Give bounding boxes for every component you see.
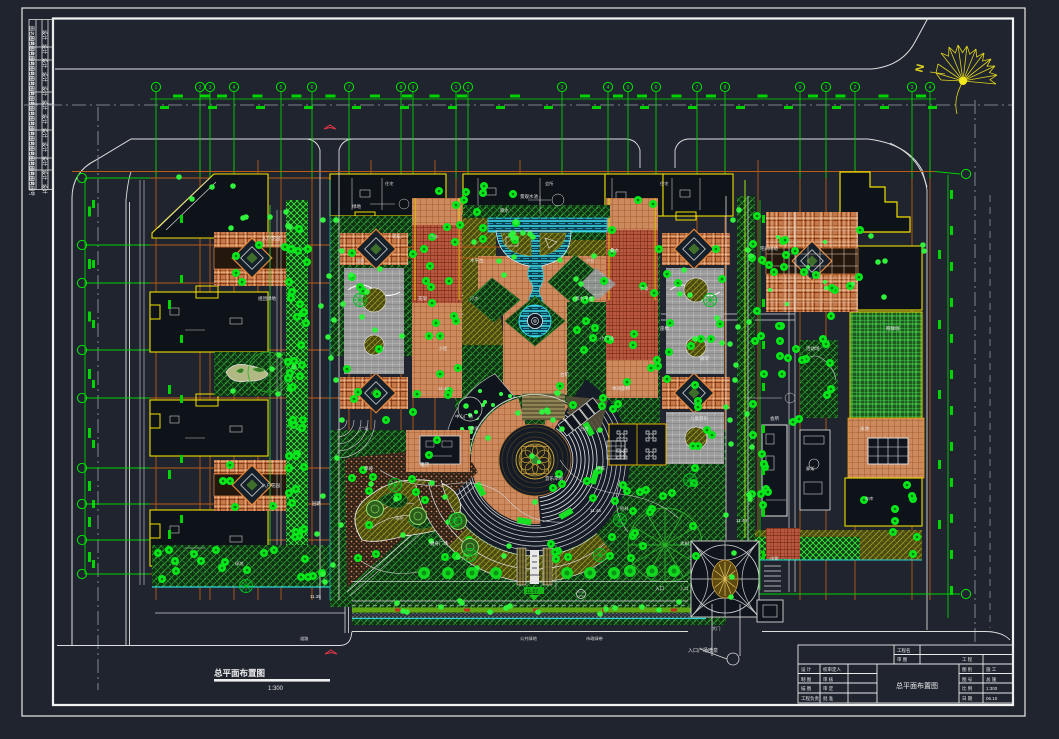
svg-text:廊架: 廊架 [700,355,709,362]
svg-text:步道: 步道 [640,285,649,292]
svg-text:总平面布置图: 总平面布置图 [896,681,938,690]
svg-text:大树: 大树 [680,540,689,547]
svg-text:雕塑: 雕塑 [420,461,429,468]
svg-text:5: 5 [280,85,283,91]
svg-text:工程负责: 工程负责 [801,695,819,702]
svg-text:批 准: 批 准 [823,695,834,702]
svg-text:设计: 设计 [41,86,48,96]
svg-text:泳池: 泳池 [860,425,869,432]
svg-text:叠水: 叠水 [610,247,619,254]
svg-text:设计: 设计 [41,72,48,82]
svg-text:3: 3 [911,85,914,91]
svg-text:1:300: 1:300 [268,686,284,692]
svg-text:4: 4 [929,85,932,91]
svg-text:1: 1 [455,85,458,91]
svg-text:密林: 密林 [620,505,629,512]
svg-text:中心广场: 中心广场 [455,413,473,420]
svg-text:2: 2 [199,85,202,91]
svg-text:景观水池: 景观水池 [520,193,538,200]
svg-text:汀步: 汀步 [470,295,478,302]
svg-text:11.40: 11.40 [736,518,747,523]
svg-text:休闲座椅: 休闲座椅 [612,385,630,392]
svg-text:1: 1 [825,85,828,91]
svg-text:公共绿地: 公共绿地 [520,635,538,642]
svg-text:会所: 会所 [545,180,553,187]
svg-text:4: 4 [233,85,236,91]
svg-text:设计: 设计 [41,30,48,40]
svg-text:台阶: 台阶 [560,371,569,378]
svg-text:儿童游乐: 儿童游乐 [690,415,708,422]
svg-text:健身广场: 健身广场 [430,540,448,547]
svg-text:宅间绿地: 宅间绿地 [760,245,778,252]
svg-text:小径: 小径 [438,345,447,352]
svg-text:亲水平台: 亲水平台 [575,295,593,302]
svg-text:4: 4 [607,85,610,91]
svg-text:9: 9 [412,85,415,91]
svg-text:设 计: 设 计 [801,666,812,673]
svg-text:2: 2 [467,85,470,91]
svg-text:车库: 车库 [865,495,873,502]
svg-text:5: 5 [627,85,630,91]
svg-text:草坪: 草坪 [395,515,403,522]
svg-text:入户花园: 入户花园 [262,482,280,489]
svg-text:台地: 台地 [580,425,589,432]
svg-text:网球场: 网球场 [886,325,900,332]
svg-text:8: 8 [400,85,403,91]
svg-text:工程名: 工程名 [897,647,911,654]
svg-text:设计: 设计 [41,170,48,180]
svg-text:9: 9 [799,85,802,91]
svg-text:11.45: 11.45 [438,386,449,391]
svg-text:草坡: 草坡 [364,465,373,472]
svg-text:2: 2 [854,85,857,91]
svg-text:大门: 大门 [712,625,720,632]
svg-text:跌水: 跌水 [500,207,509,214]
svg-text:座椅: 座椅 [660,325,669,332]
svg-text:图名图号: 图名图号 [28,176,35,196]
svg-text:住宅: 住宅 [385,180,393,186]
svg-text:绿地: 绿地 [235,560,244,566]
svg-text:工 程: 工 程 [962,656,973,663]
svg-text:花境: 花境 [470,425,478,432]
svg-text:审 核: 审 核 [823,676,834,683]
svg-text:比 例: 比 例 [962,685,973,692]
svg-text:总平面布置图: 总平面布置图 [214,668,265,678]
svg-text:施 工: 施 工 [986,666,997,673]
svg-text:7: 7 [348,85,351,91]
svg-text:入户花园: 入户花园 [262,235,280,242]
svg-text:亲水: 亲水 [430,233,439,239]
svg-text:1: 1 [155,85,158,91]
svg-text:住宅: 住宅 [660,180,668,186]
svg-text:06.10: 06.10 [986,696,998,701]
svg-text:绿篱: 绿篱 [770,555,778,562]
svg-text:审 定: 审 定 [823,685,834,692]
svg-text:小广场: 小广场 [600,335,614,342]
svg-text:廊架: 廊架 [806,465,814,472]
svg-text:3: 3 [561,85,564,91]
svg-text:园路: 园路 [312,500,321,507]
svg-text:11.57: 11.57 [526,589,538,595]
svg-text:6: 6 [311,85,314,91]
svg-text:图 别: 图 别 [962,666,973,673]
svg-text:音乐旱喷: 音乐旱喷 [545,475,563,482]
svg-text:会所: 会所 [770,415,779,422]
svg-text:入口广场喷泉: 入口广场喷泉 [688,647,718,654]
svg-text:设计: 设计 [41,142,48,152]
svg-text:设计: 设计 [41,44,48,54]
svg-text:花架: 花架 [418,295,427,302]
svg-text:设计: 设计 [41,114,48,124]
svg-text:校审定人: 校审定人 [823,666,841,673]
svg-text:设计: 设计 [41,156,48,166]
svg-text:连廊: 连廊 [356,257,364,264]
svg-text:设计: 设计 [41,128,48,138]
svg-text:活动场: 活动场 [806,345,820,352]
svg-text:平台: 平台 [586,257,594,264]
svg-text:审 图: 审 图 [897,656,908,663]
svg-text:描 图: 描 图 [801,685,812,692]
svg-text:设计: 设计 [41,58,48,68]
svg-text:木平台: 木平台 [470,257,484,264]
svg-text:11.45: 11.45 [590,508,601,513]
svg-text:设计: 设计 [41,184,48,194]
svg-text:组团绿地: 组团绿地 [258,295,276,302]
svg-text:1:300: 1:300 [986,686,998,691]
svg-text:道路: 道路 [300,635,309,642]
svg-text:绿地: 绿地 [352,203,361,209]
svg-text:总 施: 总 施 [986,676,997,683]
svg-text:制 图: 制 图 [801,676,812,683]
svg-text:11.35: 11.35 [310,594,321,599]
svg-text:树阵: 树阵 [596,465,605,472]
svg-text:花坛: 花坛 [392,233,401,240]
svg-text:8: 8 [724,85,727,91]
svg-text:6: 6 [655,85,658,91]
svg-text:3: 3 [209,85,212,91]
svg-text:入口: 入口 [680,586,688,591]
svg-text:市政绿带: 市政绿带 [586,635,603,642]
svg-text:7: 7 [696,85,699,91]
svg-text:广场: 广场 [360,425,368,432]
